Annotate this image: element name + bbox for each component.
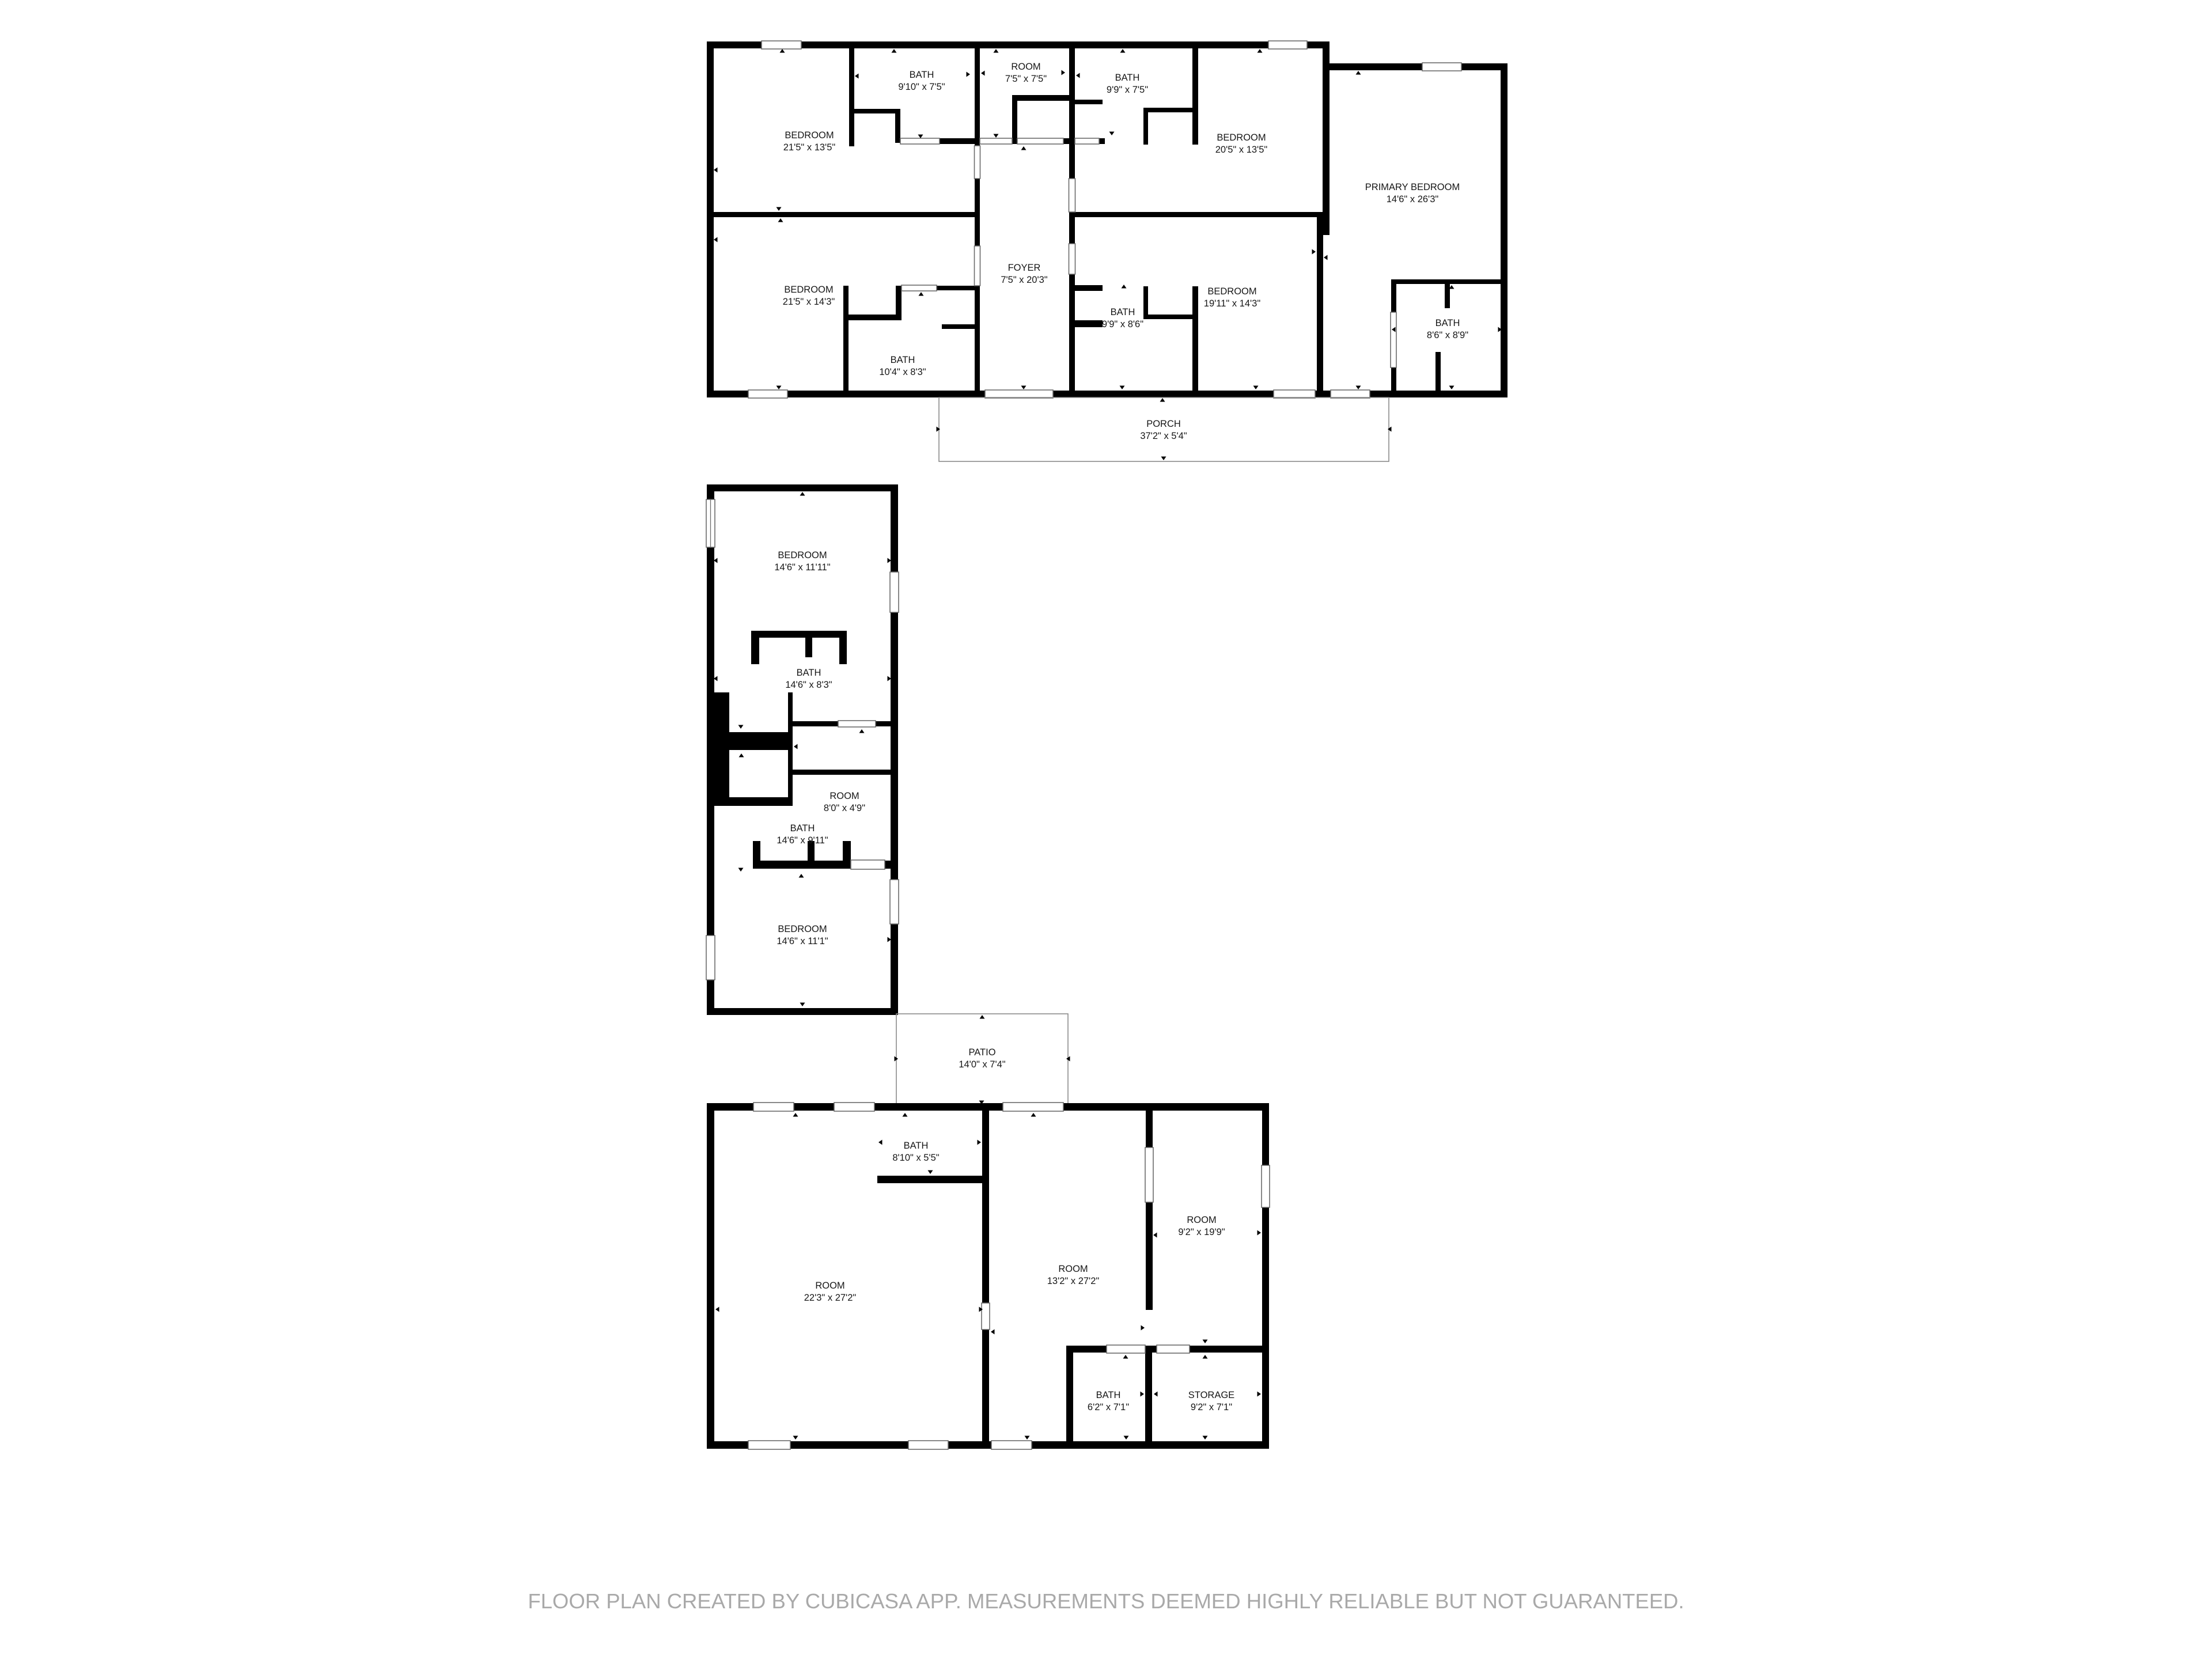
svg-text:ROOM: ROOM [829,791,859,801]
svg-text:6'2" x 7'1": 6'2" x 7'1" [1088,1402,1129,1412]
svg-text:BEDROOM: BEDROOM [784,285,833,295]
svg-text:ROOM: ROOM [1058,1264,1088,1274]
svg-text:13'2" x 27'2": 13'2" x 27'2" [1047,1276,1100,1286]
svg-text:PRIMARY BEDROOM: PRIMARY BEDROOM [1365,182,1460,192]
svg-text:FLOOR PLAN CREATED BY CUBICASA: FLOOR PLAN CREATED BY CUBICASA APP. MEAS… [528,1589,1684,1613]
svg-text:BEDROOM: BEDROOM [778,550,827,560]
svg-text:22'3" x 27'2": 22'3" x 27'2" [804,1293,857,1303]
svg-text:BATH: BATH [1111,307,1135,317]
svg-text:BATH: BATH [1115,73,1140,83]
svg-text:STORAGE: STORAGE [1188,1390,1234,1400]
svg-text:21'5" x 13'5": 21'5" x 13'5" [783,142,836,153]
svg-text:PATIO: PATIO [968,1047,995,1058]
svg-text:37'2" x 5'4": 37'2" x 5'4" [1140,431,1187,441]
svg-text:14'6" x 26'3": 14'6" x 26'3" [1387,194,1439,204]
svg-text:ROOM: ROOM [815,1281,844,1291]
svg-text:14'0" x 7'4": 14'0" x 7'4" [959,1059,1005,1070]
svg-text:BEDROOM: BEDROOM [1217,132,1266,143]
svg-text:9'2" x 19'9": 9'2" x 19'9" [1178,1227,1225,1237]
svg-text:BATH: BATH [790,823,815,834]
svg-text:BEDROOM: BEDROOM [778,924,827,934]
svg-text:BATH: BATH [797,668,821,678]
svg-text:BATH: BATH [1435,318,1460,328]
svg-text:ROOM: ROOM [1011,62,1040,72]
svg-text:FOYER: FOYER [1008,263,1041,273]
svg-text:9'2" x 7'1": 9'2" x 7'1" [1191,1402,1232,1412]
svg-text:8'0" x 4'9": 8'0" x 4'9" [824,803,865,813]
svg-text:8'10" x 5'5": 8'10" x 5'5" [892,1153,939,1163]
svg-text:20'5" x 13'5": 20'5" x 13'5" [1215,145,1268,155]
svg-text:14'6" x 9'11": 14'6" x 9'11" [777,835,828,846]
svg-text:BEDROOM: BEDROOM [1207,286,1256,297]
svg-text:7'5" x 7'5": 7'5" x 7'5" [1005,74,1047,84]
svg-text:PORCH: PORCH [1146,419,1181,429]
svg-text:9'9" x 8'6": 9'9" x 8'6" [1102,319,1143,329]
svg-text:10'4" x 8'3": 10'4" x 8'3" [879,367,926,377]
svg-text:14'6" x 8'3": 14'6" x 8'3" [785,680,832,690]
svg-text:BATH: BATH [904,1141,929,1151]
svg-text:14'6" x 11'11": 14'6" x 11'11" [774,562,830,573]
svg-text:8'6" x 8'9": 8'6" x 8'9" [1427,330,1468,340]
svg-text:21'5" x 14'3": 21'5" x 14'3" [783,297,835,307]
svg-text:14'6" x 11'1": 14'6" x 11'1" [777,936,828,946]
svg-text:BATH: BATH [1096,1390,1121,1400]
svg-text:9'9" x 7'5": 9'9" x 7'5" [1107,85,1148,95]
svg-text:BEDROOM: BEDROOM [785,130,834,141]
svg-text:BATH: BATH [891,355,915,365]
svg-text:9'10" x 7'5": 9'10" x 7'5" [898,82,945,92]
svg-text:BATH: BATH [910,70,934,80]
svg-text:19'11" x 14'3": 19'11" x 14'3" [1204,298,1261,309]
svg-text:ROOM: ROOM [1187,1215,1216,1225]
svg-text:7'5" x 20'3": 7'5" x 20'3" [1001,275,1047,285]
